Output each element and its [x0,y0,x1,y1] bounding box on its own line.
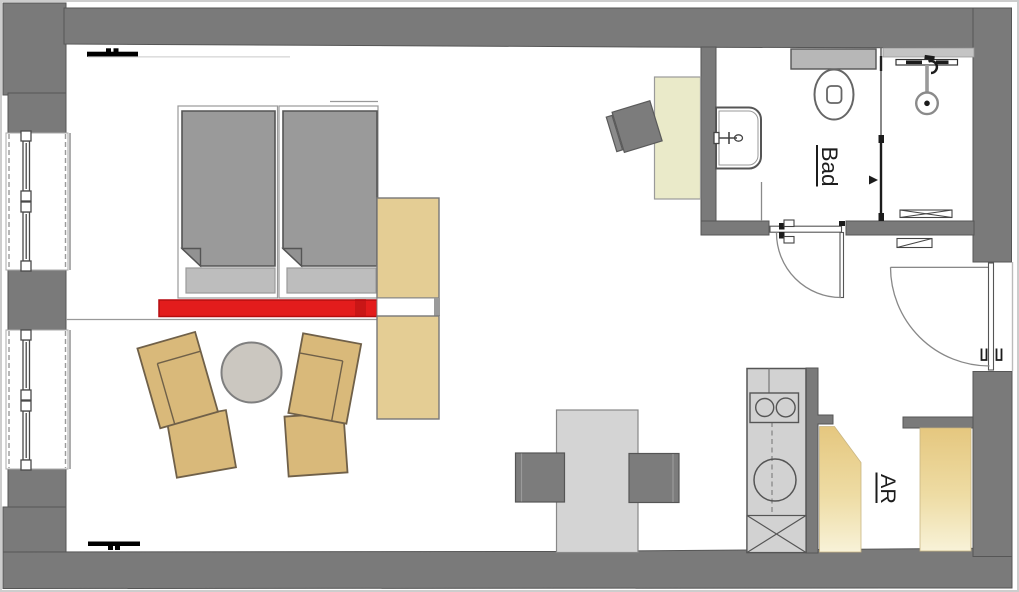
svg-text:Bad: Bad [817,147,842,187]
svg-text:AR: AR [876,474,900,504]
